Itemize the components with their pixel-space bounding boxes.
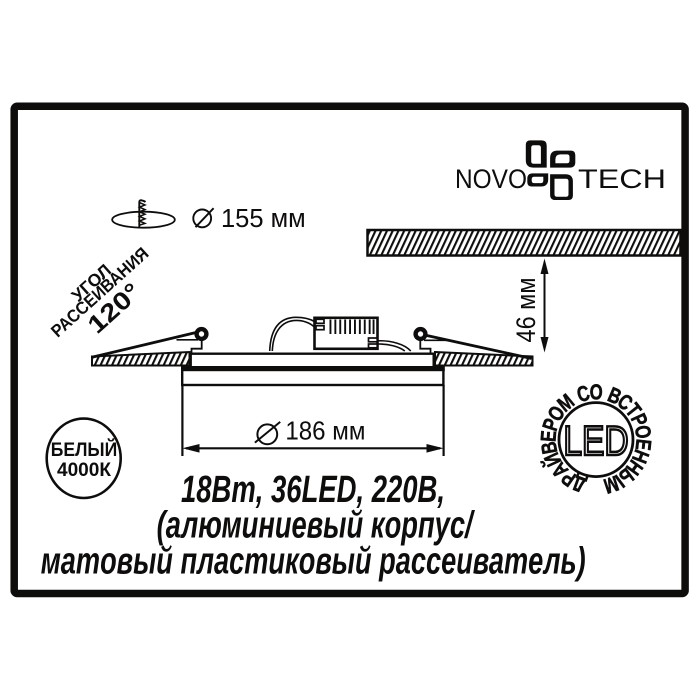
svg-text:О: О <box>590 381 603 405</box>
svg-text:155 мм: 155 мм <box>221 205 306 233</box>
svg-text:186 мм: 186 мм <box>285 416 365 446</box>
svg-text:БЕЛЫЙ: БЕЛЫЙ <box>51 439 118 461</box>
svg-text:LED: LED <box>563 418 628 464</box>
svg-text:TECH: TECH <box>578 164 666 194</box>
svg-text:46 мм: 46 мм <box>511 278 541 343</box>
svg-text:NOVO: NOVO <box>455 164 527 194</box>
svg-text:4000К: 4000К <box>57 460 111 481</box>
svg-text:маmовый пласmиковый рассеиваmе: маmовый пласmиковый рассеиваmель) <box>41 541 586 583</box>
